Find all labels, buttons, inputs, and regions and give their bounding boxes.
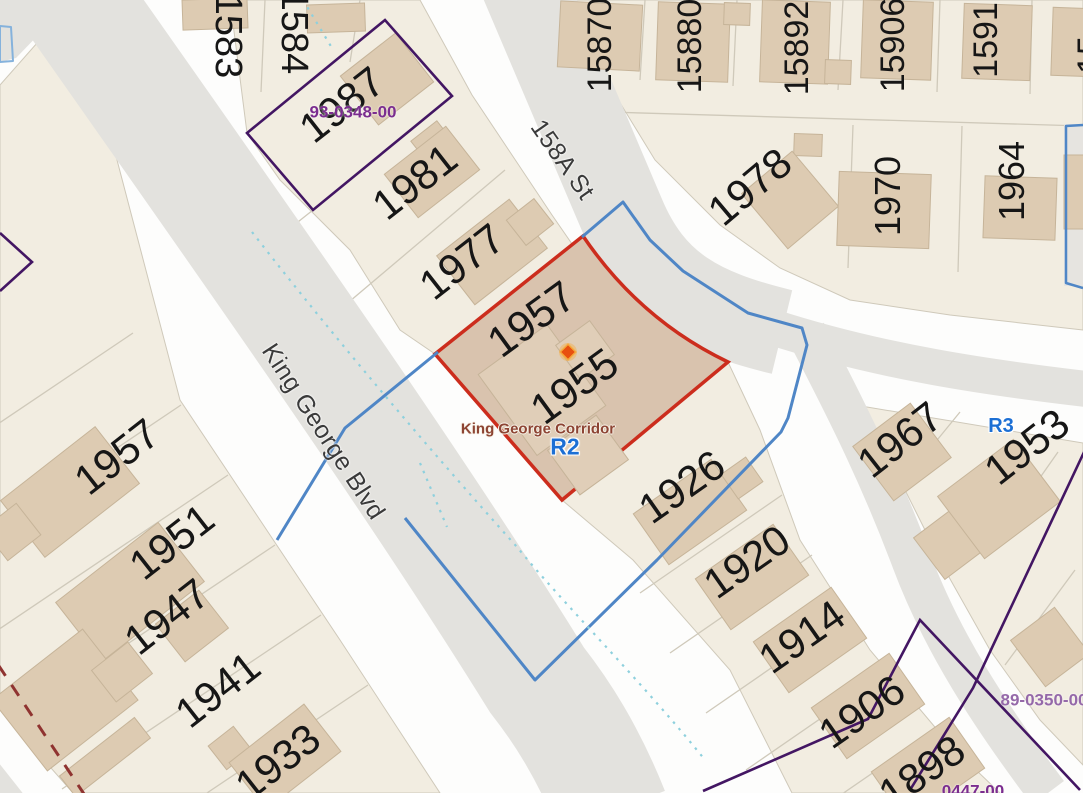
road-corner-wedge-sw	[0, 758, 40, 793]
building-footprint	[983, 176, 1057, 240]
building-footprint	[861, 0, 934, 80]
selected-parcel-marker	[559, 343, 577, 361]
building-footprint	[760, 0, 831, 84]
building-footprint	[1051, 7, 1083, 76]
building-footprint	[307, 3, 366, 33]
building-footprint	[794, 134, 823, 157]
building-footprint	[724, 3, 751, 26]
building-footprint	[656, 2, 731, 82]
building-footprint	[557, 1, 642, 71]
building-footprint	[962, 3, 1033, 80]
building-footprint	[825, 60, 852, 85]
parcel-map-canvas	[0, 0, 1083, 793]
building-footprint	[182, 0, 248, 30]
gis-map-viewport[interactable]: 1583158419871981197715870158801589215906…	[0, 0, 1083, 793]
building-footprint	[837, 171, 932, 248]
